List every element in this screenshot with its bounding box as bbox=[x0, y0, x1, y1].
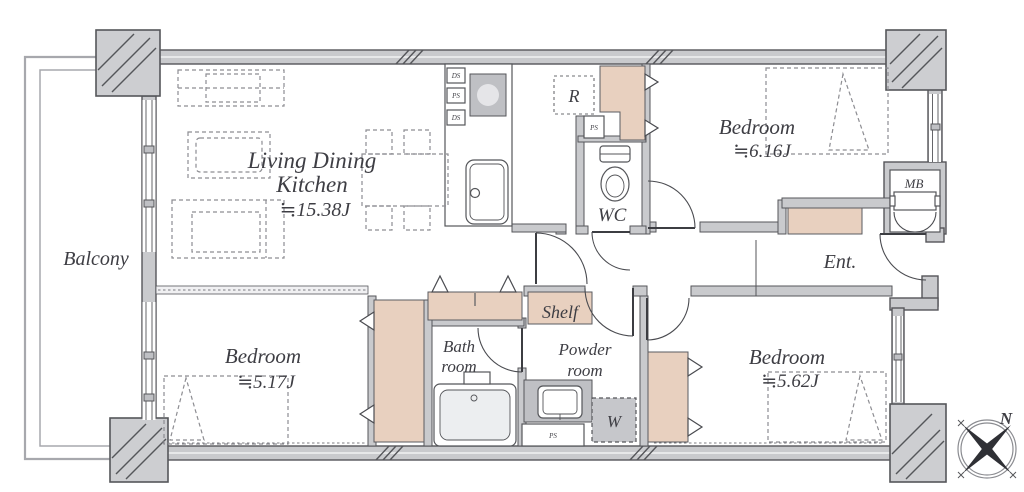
powder-label-line1: Powder bbox=[558, 340, 612, 359]
compass-north-label: N bbox=[999, 409, 1013, 428]
pipe-space-label-kitchen: PS bbox=[451, 92, 460, 100]
compass-icon: N bbox=[958, 409, 1016, 478]
balcony-label: Balcony bbox=[63, 248, 129, 270]
pipe-space-label-powder: PS bbox=[548, 432, 557, 440]
closet-bedroom-ne bbox=[600, 66, 645, 140]
powder-label-line2: room bbox=[567, 361, 602, 380]
entrance-label: Ent. bbox=[823, 251, 857, 273]
bedroom-ne-area: ≒6.16J bbox=[733, 141, 792, 162]
bath-label-line2: room bbox=[441, 357, 476, 376]
duct-space-label-bottom: DS bbox=[451, 114, 461, 122]
bedroom-se-label: Bedroom bbox=[749, 345, 825, 369]
bedroom-ne-label: Bedroom bbox=[719, 115, 795, 139]
ldk-label-line2: Kitchen bbox=[275, 172, 348, 197]
wc-label: WC bbox=[598, 205, 627, 226]
bathroom bbox=[434, 372, 516, 446]
meter-box-label: MB bbox=[904, 176, 924, 191]
closet-bedroom-se bbox=[648, 352, 688, 442]
ldk-area-label: ≒15.38J bbox=[280, 199, 352, 221]
shelf-label: Shelf bbox=[542, 302, 581, 322]
closet-bedroom-sw bbox=[374, 300, 424, 442]
ldk-label-line1: Living Dining bbox=[247, 148, 376, 173]
bedroom-se-area: ≒5.62J bbox=[761, 371, 820, 392]
kitchen bbox=[445, 64, 512, 226]
shoe-cabinet bbox=[788, 208, 862, 234]
washer-label: W bbox=[607, 412, 623, 431]
bath-label-line1: Bath bbox=[443, 337, 475, 356]
bedroom-sw-area: ≒5.17J bbox=[237, 372, 296, 393]
bedroom-sw-label: Bedroom bbox=[225, 344, 301, 368]
duct-space-label-top: DS bbox=[451, 72, 461, 80]
floor-plan: N Balcony Living Dining Kitchen ≒15.38J … bbox=[0, 0, 1024, 492]
pipe-space-label-wc: PS bbox=[589, 124, 598, 132]
refrigerator-label: R bbox=[568, 86, 580, 106]
